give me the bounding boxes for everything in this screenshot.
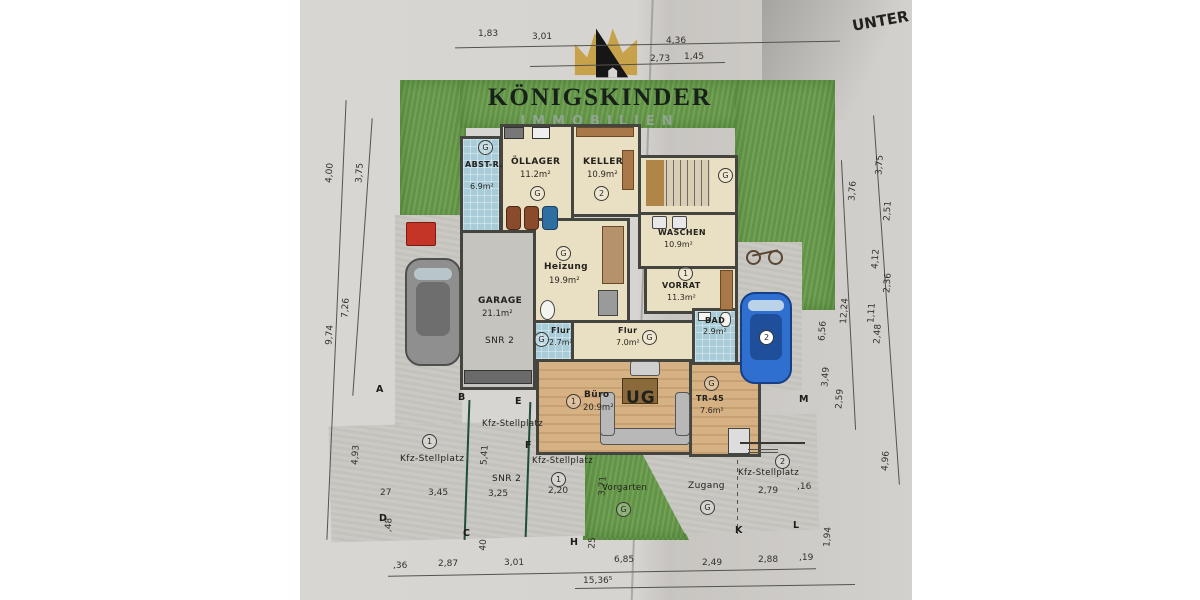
dim-bottom-5: 15,36⁵ (583, 576, 612, 586)
area-vorrat: 11.3m² (667, 293, 696, 302)
dim-right-7: 2,48 (872, 324, 883, 345)
dim-right-6: 1,11 (866, 303, 877, 324)
area-heizung: 19.9m² (549, 276, 580, 286)
dim-inner-1: 5,41 (479, 445, 490, 466)
label-parking-mid: Kfz-Stellplatz (532, 456, 593, 466)
label-vorgarten: Vorgarten (602, 483, 647, 493)
badge-vorrat: 1 (678, 266, 693, 281)
point-d: D (379, 513, 387, 524)
label-parking-left: Kfz-Stellplatz (400, 454, 464, 464)
dim-top-1: 1,83 (478, 29, 498, 39)
vorrat-shelf (720, 270, 733, 310)
label-garage: GARAGE (478, 296, 522, 306)
logo-title: KÖNIGSKINDER (450, 84, 750, 112)
label-keller: KELLER (583, 157, 623, 167)
label-parking-mid-snr: SNR 2 (492, 474, 521, 484)
keller-shelf (576, 127, 634, 137)
car-gray-roof (416, 282, 450, 336)
area-flur-main: 7.0m² (616, 338, 640, 347)
dim-right-8: 6,56 (817, 321, 828, 342)
label-parking-top: Kfz-Stellplatz (482, 419, 543, 429)
small-annotation-lines-2 (748, 449, 778, 454)
point-f: F (525, 440, 532, 451)
badge-abst: G (478, 140, 493, 155)
car-gray-windshield (414, 268, 452, 280)
area-buero: 20.9m² (583, 403, 614, 413)
oil-tank-1 (506, 206, 521, 230)
oil-tank-2 (524, 206, 539, 230)
dim-right-5: 2,36 (882, 273, 893, 294)
dim-right-10: 3,49 (820, 367, 831, 388)
point-k: K (735, 525, 742, 536)
area-tr45: 7.6m² (700, 406, 724, 415)
stairs-landing (646, 160, 664, 206)
label-heizung: Heizung (544, 262, 588, 272)
dim-bottom-2: 2,87 (438, 559, 458, 569)
dim-line-left-inner (352, 118, 372, 395)
sofa-arm-right (675, 392, 690, 436)
area-waschen: 10.9m² (664, 240, 693, 249)
keller-cupboard (622, 150, 634, 190)
dim-bottom-4: 6,85 (614, 555, 634, 565)
dim-inner-5: 2,79 (758, 486, 778, 496)
dim-top-2: 3,01 (532, 32, 552, 42)
dim-inner-4: 2,20 (548, 486, 568, 496)
badge-stairs: G (718, 168, 733, 183)
dim-right-2: 3,76 (847, 181, 858, 202)
label-bad: BAD (705, 316, 725, 325)
point-a: A (376, 384, 383, 395)
floorplan-photo: KÖNIGSKINDER IMMOBILIEN UNTER (300, 0, 912, 600)
dim-inner-6: ,16 (797, 482, 811, 492)
dim-line-bottom2 (575, 584, 855, 589)
floor-label-ug: UG (626, 388, 656, 408)
dim-inner-2: 3,45 (428, 488, 448, 498)
dim-right-11: 2,59 (834, 389, 845, 410)
badge-tr45: G (704, 376, 719, 391)
garage-door (464, 370, 532, 384)
point-l: L (793, 520, 799, 531)
badge-parking-right: 2 (775, 454, 790, 469)
wc-heizung (540, 300, 555, 320)
badge-oellager: G (530, 186, 545, 201)
dim-left-4: 9,74 (324, 325, 335, 346)
dim-right-12: 4,96 (880, 451, 891, 472)
dim-inner-7: 3,71 (597, 476, 608, 497)
dim-left-5: 4,93 (350, 445, 361, 466)
car-blue-windshield (748, 300, 784, 311)
badge-flur-small: G (534, 332, 549, 347)
point-b: B (458, 392, 465, 403)
dim-bottom-3: 3,01 (504, 558, 524, 568)
dim-top-3: 4,36 (666, 36, 686, 46)
dim-right-3: 2,51 (882, 201, 893, 222)
dim-right-4: 4,12 (870, 249, 881, 270)
dim-right-9: 12,24 (839, 298, 851, 324)
sink-unit-2 (532, 127, 550, 139)
dim-right-1: 3,75 (874, 155, 885, 176)
badge-heizung: G (556, 246, 571, 261)
dim-bottom-8: ,19 (799, 553, 813, 563)
area-keller: 10.9m² (587, 170, 618, 180)
crown-logo-icon (572, 24, 640, 84)
sink-unit (504, 127, 524, 139)
area-bad: 2.9m² (703, 327, 727, 336)
badge-parking-mid: 1 (551, 472, 566, 487)
area-oellager: 11.2m² (520, 170, 551, 180)
badge-zugang: G (700, 500, 715, 515)
area-garage: 21.1m² (482, 309, 513, 319)
dim-bottom-6: 2,49 (702, 558, 722, 568)
label-abst: ABST-R. (465, 160, 503, 169)
plot-boundary-right-dashed (737, 452, 738, 534)
dim-bottom-10: 25 (587, 537, 598, 549)
badge-buero: 1 (566, 394, 581, 409)
dim-bottom-1: ,36 (393, 561, 407, 571)
badge-vorgarten: G (616, 502, 631, 517)
area-abst: 6.9m² (470, 182, 494, 191)
point-m: M (799, 394, 808, 405)
label-vorrat: VORRAT (662, 281, 701, 290)
badge-parking-left: 1 (422, 434, 437, 449)
tr45-appliance (728, 428, 750, 454)
badge-flur-main: G (642, 330, 657, 345)
label-flur-small: Flur (551, 326, 570, 335)
dim-inner-3: 3,25 (488, 489, 508, 499)
boiler (598, 290, 618, 316)
label-oellager: ÖLLAGER (511, 157, 560, 167)
oil-tank-3 (542, 206, 558, 230)
label-waschen: WASCHEN (658, 228, 706, 237)
point-e: E (515, 396, 522, 407)
badge-keller: 2 (594, 186, 609, 201)
label-garage-snr: SNR 2 (485, 336, 514, 346)
dim-left-3: 7,26 (340, 298, 351, 319)
dim-bottom-7: 2,88 (758, 555, 778, 565)
heizung-cupboard (602, 226, 624, 284)
red-bin (406, 222, 436, 246)
label-zugang: Zugang (688, 481, 725, 491)
point-h: H (570, 537, 578, 548)
armchair (630, 361, 660, 376)
dim-top-5: 1,45 (684, 52, 704, 62)
label-tr45: TR-45 (696, 394, 724, 403)
dim-right-13: 1,94 (822, 527, 833, 548)
screenshot-canvas: KÖNIGSKINDER IMMOBILIEN UNTER (0, 0, 1200, 600)
point-c: C (463, 528, 470, 539)
dim-bottom-9: 40 (478, 539, 489, 551)
dim-left-1: 4,00 (324, 163, 335, 184)
dim-left-6: 27 (380, 488, 391, 498)
dim-left-2: 3,75 (354, 163, 365, 184)
label-buero: Büro (584, 390, 610, 400)
area-flur-small: 2.7m² (549, 338, 573, 347)
small-annotation-lines (740, 442, 805, 444)
car-blue-badge: 2 (759, 330, 774, 345)
label-parking-right: Kfz-Stellplatz (738, 468, 799, 478)
dim-top-4: 2,73 (650, 54, 670, 64)
label-flur-main: Flur (618, 326, 637, 335)
